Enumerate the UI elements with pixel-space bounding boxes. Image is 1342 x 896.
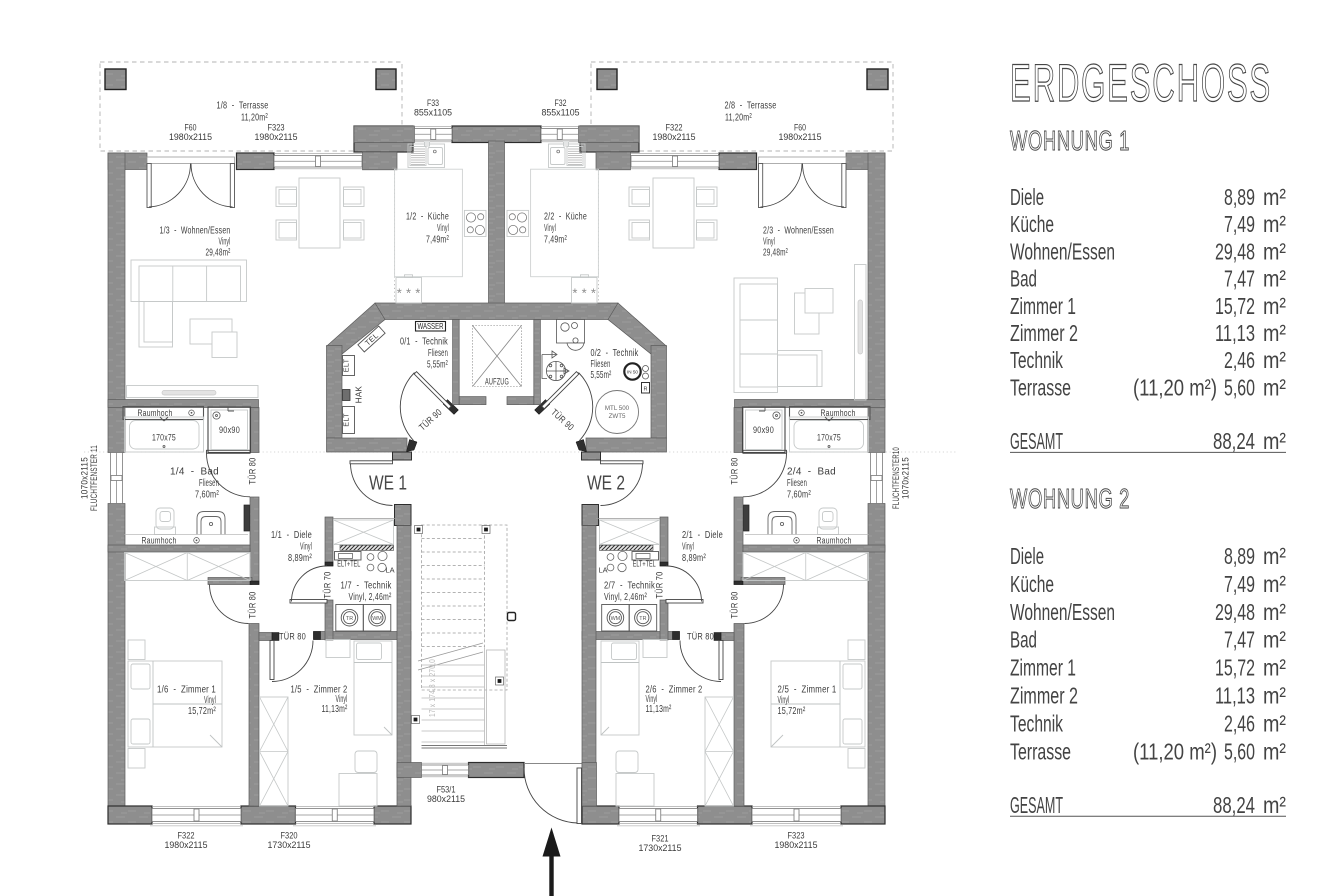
- svg-text:m²: m²: [1263, 571, 1286, 597]
- svg-text:m²: m²: [1263, 683, 1286, 709]
- svg-text:1980x2115: 1980x2115: [653, 132, 696, 143]
- svg-text:0/1 - Technik: 0/1 - Technik: [400, 337, 448, 348]
- svg-text:TÜR 80: TÜR 80: [729, 458, 740, 485]
- svg-text:WASSER: WASSER: [418, 321, 444, 331]
- svg-text:Vinyl: Vinyl: [763, 237, 775, 248]
- svg-text:Raumhoch: Raumhoch: [142, 536, 177, 546]
- svg-text:R: R: [644, 387, 648, 393]
- svg-text:90x90: 90x90: [753, 425, 774, 435]
- svg-text:LA: LA: [598, 566, 607, 575]
- svg-text:855x1105: 855x1105: [414, 107, 452, 118]
- svg-text:TÜR 80: TÜR 80: [247, 458, 258, 485]
- svg-text:15,72m²: 15,72m²: [188, 706, 216, 717]
- svg-text:11,20m²: 11,20m²: [725, 113, 752, 124]
- svg-text:170x75: 170x75: [817, 433, 841, 443]
- svg-text:FLUCHTFENSTER10: FLUCHTFENSTER10: [891, 447, 901, 509]
- svg-text:11,13: 11,13: [1215, 683, 1255, 709]
- svg-text:TÜR 80: TÜR 80: [247, 592, 258, 619]
- svg-text:2/7 - Technik: 2/7 - Technik: [604, 581, 655, 592]
- svg-text:Technik: Technik: [1010, 710, 1063, 736]
- svg-text:WOHNUNG 1: WOHNUNG 1: [1010, 125, 1130, 156]
- svg-text:TÜR 80: TÜR 80: [279, 631, 306, 642]
- svg-text:m²: m²: [1263, 599, 1286, 625]
- svg-text:1730x2115: 1730x2115: [268, 840, 311, 851]
- svg-text:980x2115: 980x2115: [427, 794, 465, 805]
- svg-text:Vinyl: Vinyl: [300, 542, 312, 553]
- svg-text:1980x2115: 1980x2115: [255, 132, 298, 143]
- svg-text:11,13m²: 11,13m²: [322, 704, 348, 715]
- svg-text:WE 2: WE 2: [587, 472, 625, 495]
- svg-text:Vinyl, 2,46m²: Vinyl, 2,46m²: [604, 592, 647, 603]
- svg-text:m²: m²: [1263, 211, 1286, 237]
- svg-text:29,48: 29,48: [1215, 238, 1255, 264]
- svg-text:Raumhoch: Raumhoch: [138, 408, 173, 418]
- svg-text:1/1 - Diele: 1/1 - Diele: [271, 530, 312, 541]
- svg-text:8,89: 8,89: [1224, 184, 1255, 210]
- svg-text:7,60m²: 7,60m²: [195, 490, 219, 501]
- svg-text:8,89m²: 8,89m²: [682, 553, 706, 564]
- svg-text:m²: m²: [1263, 266, 1286, 292]
- svg-text:Vinyl: Vinyl: [219, 237, 231, 248]
- svg-text:88,24: 88,24: [1213, 792, 1255, 818]
- svg-text:TÜR 80: TÜR 80: [687, 631, 714, 642]
- svg-text:1980x2115: 1980x2115: [165, 840, 208, 851]
- svg-text:15,72m²: 15,72m²: [778, 706, 806, 717]
- svg-text:29,48m²: 29,48m²: [206, 248, 231, 259]
- svg-text:TÜR 80: TÜR 80: [729, 592, 740, 619]
- svg-text:855x1105: 855x1105: [542, 107, 580, 118]
- svg-text:WM: WM: [611, 616, 621, 622]
- svg-text:7,49m²: 7,49m²: [426, 235, 449, 246]
- svg-text:Wohnen/Essen: Wohnen/Essen: [1010, 238, 1115, 264]
- svg-text:8,89m²: 8,89m²: [288, 553, 312, 564]
- svg-text:Vinyl: Vinyl: [437, 223, 449, 234]
- svg-text:Fliesen: Fliesen: [591, 359, 611, 370]
- svg-text:Zimmer 1: Zimmer 1: [1010, 293, 1076, 319]
- svg-text:15,72: 15,72: [1215, 293, 1255, 319]
- svg-text:Raumhoch: Raumhoch: [817, 536, 852, 546]
- svg-text:2/1 - Diele: 2/1 - Diele: [682, 530, 723, 541]
- svg-text:m²: m²: [1263, 428, 1286, 454]
- svg-text:7,47: 7,47: [1224, 627, 1255, 653]
- svg-text:m²: m²: [1263, 347, 1286, 373]
- svg-text:7,60m²: 7,60m²: [787, 490, 811, 501]
- svg-text:1/8 - Terrasse: 1/8 - Terrasse: [217, 101, 269, 112]
- svg-text:m²: m²: [1263, 320, 1286, 346]
- svg-text:7,49m²: 7,49m²: [544, 235, 567, 246]
- svg-text:ELT: ELT: [342, 358, 351, 372]
- svg-text:ELT: ELT: [342, 413, 351, 427]
- svg-text:IN 50: IN 50: [627, 370, 638, 375]
- svg-text:WOHNUNG 2: WOHNUNG 2: [1010, 483, 1130, 514]
- svg-text:1/3 - Wohnen/Essen: 1/3 - Wohnen/Essen: [160, 226, 231, 237]
- svg-text:Bad: Bad: [1010, 627, 1037, 653]
- svg-text:m²: m²: [1263, 710, 1286, 736]
- svg-text:1730x2115: 1730x2115: [639, 843, 682, 854]
- svg-text:m²: m²: [1263, 792, 1286, 818]
- svg-text:Diele: Diele: [1010, 184, 1044, 210]
- svg-text:ELT+TEL: ELT+TEL: [633, 560, 656, 569]
- svg-text:m²: m²: [1263, 374, 1286, 400]
- svg-text:2/3 - Wohnen/Essen: 2/3 - Wohnen/Essen: [763, 226, 834, 237]
- svg-text:5,60: 5,60: [1224, 374, 1255, 400]
- svg-text:8,89: 8,89: [1224, 543, 1255, 569]
- svg-text:2/5 - Zimmer 1: 2/5 - Zimmer 1: [778, 685, 837, 696]
- svg-text:1980x2115: 1980x2115: [775, 840, 818, 851]
- svg-text:Bad: Bad: [1010, 266, 1037, 292]
- svg-text:m²: m²: [1263, 738, 1286, 764]
- svg-text:MTL 500: MTL 500: [605, 405, 630, 412]
- svg-text:m²: m²: [1263, 184, 1286, 210]
- svg-text:1980x2115: 1980x2115: [779, 132, 822, 143]
- svg-text:m²: m²: [1263, 293, 1286, 319]
- svg-text:TÜR 70: TÜR 70: [654, 572, 665, 599]
- svg-text:FLUCHTFENSTER 11: FLUCHTFENSTER 11: [89, 445, 99, 511]
- svg-text:WM: WM: [372, 616, 382, 622]
- svg-text:5,55m²: 5,55m²: [591, 370, 612, 381]
- svg-text:7,49: 7,49: [1224, 571, 1255, 597]
- svg-text:Zimmer 1: Zimmer 1: [1010, 655, 1076, 681]
- svg-text:1070x2115: 1070x2115: [901, 457, 911, 499]
- svg-text:Zimmer 2: Zimmer 2: [1010, 320, 1078, 346]
- svg-text:1980x2115: 1980x2115: [169, 132, 212, 143]
- svg-text:170x75: 170x75: [152, 433, 176, 443]
- svg-text:Wohnen/Essen: Wohnen/Essen: [1010, 599, 1115, 625]
- svg-text:Vinyl: Vinyl: [682, 542, 694, 553]
- svg-text:WE 1: WE 1: [369, 472, 407, 495]
- svg-text:(11,20 m²): (11,20 m²): [1133, 738, 1217, 764]
- svg-text:Küche: Küche: [1010, 211, 1054, 237]
- svg-text:TÜR 70: TÜR 70: [322, 572, 333, 599]
- svg-text:m²: m²: [1263, 238, 1286, 264]
- svg-text:1/4 - Bad: 1/4 - Bad: [170, 467, 219, 478]
- svg-text:1/7 - Technik: 1/7 - Technik: [341, 581, 392, 592]
- svg-text:2,46: 2,46: [1224, 710, 1255, 736]
- svg-text:29,48m²: 29,48m²: [763, 248, 788, 259]
- svg-text:2/8 - Terrasse: 2/8 - Terrasse: [725, 101, 777, 112]
- svg-text:Fliesen: Fliesen: [199, 478, 219, 489]
- svg-text:Zimmer 2: Zimmer 2: [1010, 683, 1078, 709]
- svg-text:Vinyl: Vinyl: [778, 695, 790, 706]
- svg-text:Küche: Küche: [1010, 571, 1054, 597]
- svg-text:m²: m²: [1263, 543, 1286, 569]
- svg-text:ELT+TEL: ELT+TEL: [337, 560, 360, 569]
- svg-text:5,60: 5,60: [1224, 738, 1255, 764]
- svg-text:7,49: 7,49: [1224, 211, 1255, 237]
- svg-text:Diele: Diele: [1010, 543, 1044, 569]
- svg-text:29,48: 29,48: [1215, 599, 1255, 625]
- svg-text:17 x 174,8 x 270,0: 17 x 174,8 x 270,0: [427, 659, 437, 717]
- svg-text:7,47: 7,47: [1224, 266, 1255, 292]
- svg-text:5,55m²: 5,55m²: [427, 360, 448, 371]
- svg-text:* * *: * * *: [572, 286, 596, 301]
- svg-text:Vinyl: Vinyl: [204, 695, 216, 706]
- svg-text:GESAMT: GESAMT: [1010, 792, 1063, 818]
- svg-text:2,46: 2,46: [1224, 347, 1255, 373]
- svg-text:TR: TR: [639, 616, 646, 622]
- svg-text:Technik: Technik: [1010, 347, 1063, 373]
- svg-text:1/2 - Küche: 1/2 - Küche: [406, 212, 449, 223]
- svg-text:Raumhoch: Raumhoch: [821, 408, 856, 418]
- svg-text:m²: m²: [1263, 627, 1286, 653]
- svg-text:15,72: 15,72: [1215, 655, 1255, 681]
- svg-text:11,13: 11,13: [1215, 320, 1255, 346]
- svg-text:2/4 - Bad: 2/4 - Bad: [787, 467, 836, 478]
- svg-text:(11,20 m²): (11,20 m²): [1133, 374, 1217, 400]
- svg-text:Fliesen: Fliesen: [787, 478, 807, 489]
- svg-text:Terrasse: Terrasse: [1010, 374, 1071, 400]
- svg-text:1070x2115: 1070x2115: [80, 457, 90, 499]
- svg-text:* * *: * * *: [397, 286, 421, 301]
- svg-text:1/6 - Zimmer 1: 1/6 - Zimmer 1: [157, 685, 216, 696]
- svg-text:Vinyl, 2,46m²: Vinyl, 2,46m²: [349, 592, 392, 603]
- svg-text:GESAMT: GESAMT: [1010, 428, 1063, 454]
- svg-text:HAK: HAK: [355, 385, 364, 403]
- svg-text:90x90: 90x90: [219, 425, 240, 435]
- svg-text:m²: m²: [1263, 655, 1286, 681]
- svg-text:0/2 - Technik: 0/2 - Technik: [591, 348, 639, 359]
- svg-text:Fliesen: Fliesen: [428, 348, 448, 359]
- svg-text:ERDGESCHOSS: ERDGESCHOSS: [1010, 54, 1272, 113]
- svg-text:Terrasse: Terrasse: [1010, 738, 1071, 764]
- svg-text:AUFZUG: AUFZUG: [485, 377, 509, 387]
- svg-text:TR: TR: [346, 616, 353, 622]
- svg-text:11,13m²: 11,13m²: [646, 704, 672, 715]
- svg-text:2/2 - Küche: 2/2 - Küche: [544, 212, 587, 223]
- svg-text:88,24: 88,24: [1213, 428, 1255, 454]
- svg-text:Vinyl: Vinyl: [544, 223, 556, 234]
- svg-text:LA: LA: [385, 566, 394, 575]
- svg-text:ZWT5: ZWT5: [609, 413, 626, 420]
- svg-text:11,20m²: 11,20m²: [241, 113, 268, 124]
